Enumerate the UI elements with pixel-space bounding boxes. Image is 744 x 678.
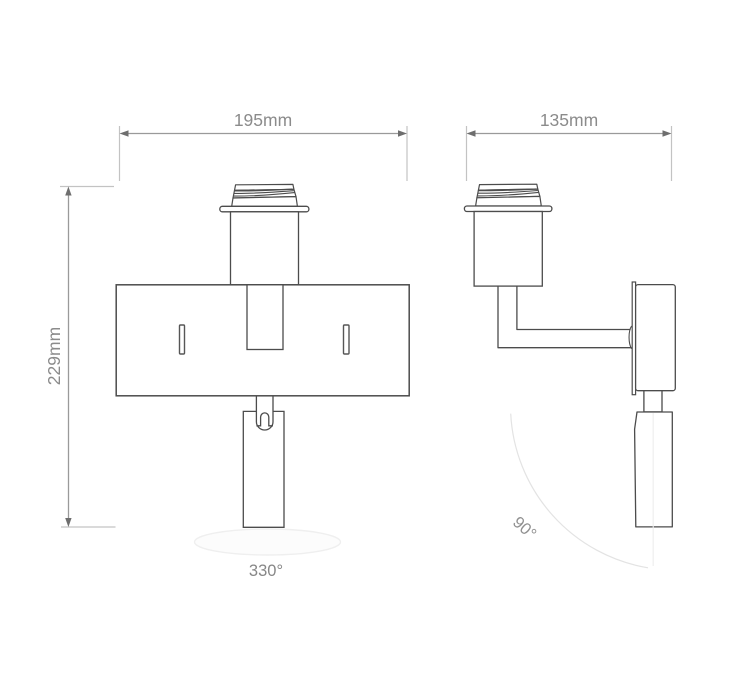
svg-text:135mm: 135mm (540, 110, 598, 130)
svg-text:229mm: 229mm (44, 327, 64, 385)
svg-text:195mm: 195mm (234, 110, 292, 130)
svg-text:330°: 330° (249, 562, 283, 580)
